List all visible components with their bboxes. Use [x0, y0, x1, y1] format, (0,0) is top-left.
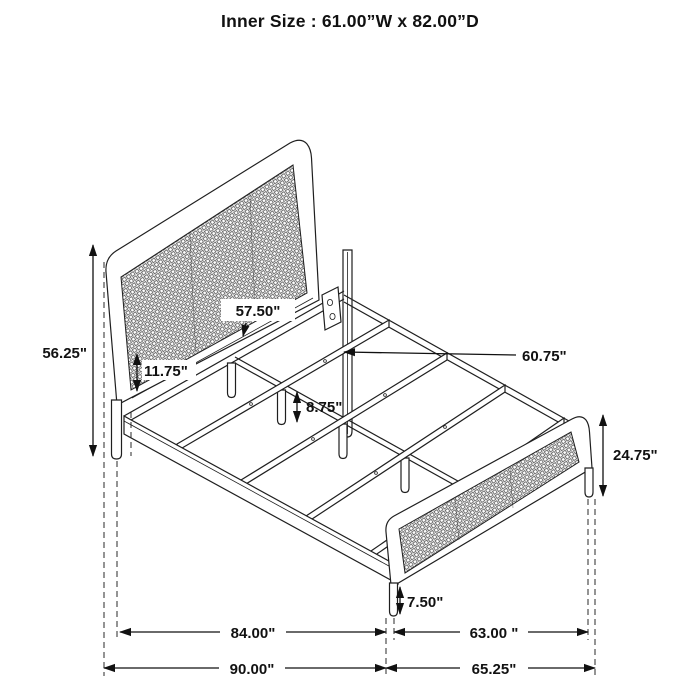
bed-dimension-diagram: 56.25" 57.50" 11.75" 60.75" 8.75" 24.75": [0, 0, 700, 700]
support-leg: [339, 424, 347, 459]
dim-frame-width: 63.00 ": [394, 623, 588, 642]
dim-overall-width-label: 65.25": [472, 661, 517, 678]
dim-overall-length: 90.00": [104, 659, 386, 678]
support-leg: [228, 363, 236, 398]
dim-overall-length-label: 90.00": [230, 661, 275, 678]
headboard-front-leg: [112, 400, 122, 459]
dim-rail-height-label: 11.75": [144, 363, 188, 380]
mounting-bracket: [322, 287, 341, 330]
dim-headboard-height-label: 56.25": [42, 345, 87, 362]
footboard-front-leg: [390, 583, 398, 616]
dim-footboard-leg-height-label: 7.50": [407, 594, 443, 611]
dim-footboard-leg-height: 7.50": [400, 587, 443, 614]
support-leg: [278, 390, 286, 425]
diagram-page: { "title": "Inner Size : 61.00\u201dW x …: [0, 0, 700, 700]
dim-slat-length-label: 60.75": [522, 348, 567, 365]
dim-frame-length-label: 84.00": [231, 625, 276, 642]
dim-inner-width-label: 57.50": [236, 303, 281, 320]
dim-footboard-height-label: 24.75": [613, 447, 658, 464]
dim-frame-length: 84.00": [120, 623, 386, 642]
dim-support-leg-height-label: 8.75": [306, 399, 342, 416]
dim-footboard-height: 24.75": [603, 415, 658, 496]
footboard-back-leg: [585, 468, 593, 497]
dim-support-leg-height: 8.75": [297, 392, 342, 422]
dim-headboard-height: 56.25": [42, 245, 93, 456]
dim-slat-length: 60.75": [344, 348, 567, 365]
support-leg: [401, 458, 409, 493]
dim-overall-width: 65.25": [386, 659, 595, 678]
near-side-rail: [124, 416, 398, 584]
dim-frame-width-label: 63.00 ": [470, 625, 519, 642]
